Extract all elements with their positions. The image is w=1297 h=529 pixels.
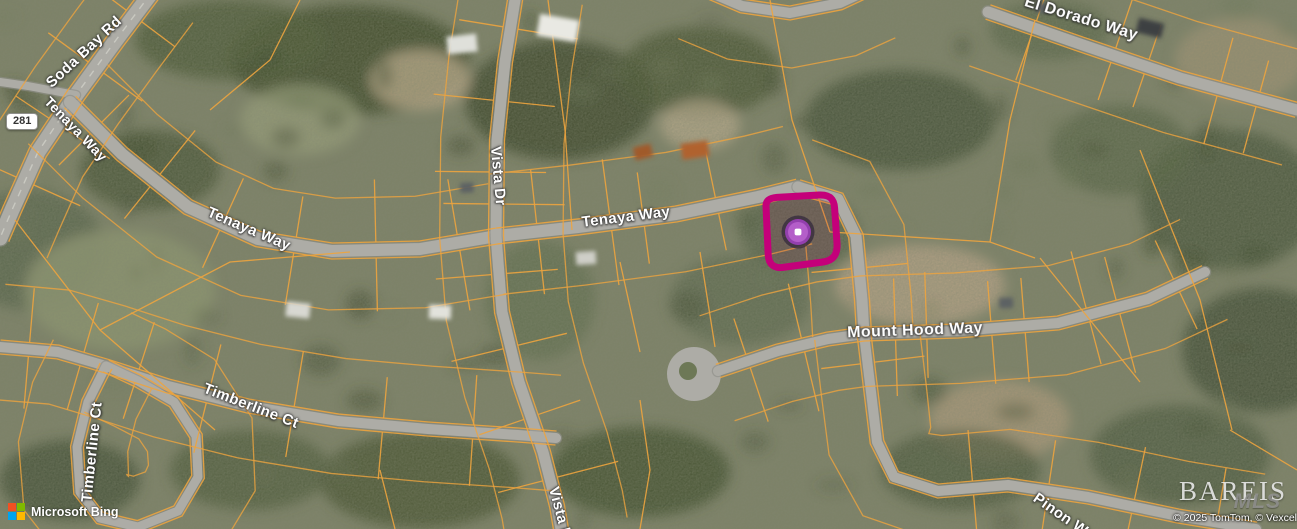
property-marker-pin[interactable] [782, 216, 815, 249]
microsoft-logo-icon [8, 503, 25, 520]
satellite-imagery-layer [0, 0, 1297, 529]
route-shield-281: 281 [6, 113, 38, 130]
aerial-map-canvas[interactable]: Soda Bay RdTenaya WayTenaya WayVista DrT… [0, 0, 1297, 529]
bing-provider-label: Microsoft Bing [31, 505, 119, 519]
bing-attribution: Microsoft Bing [8, 503, 119, 520]
map-copyright-text: © 2025 TomTom, © Vexcel [1173, 512, 1297, 524]
